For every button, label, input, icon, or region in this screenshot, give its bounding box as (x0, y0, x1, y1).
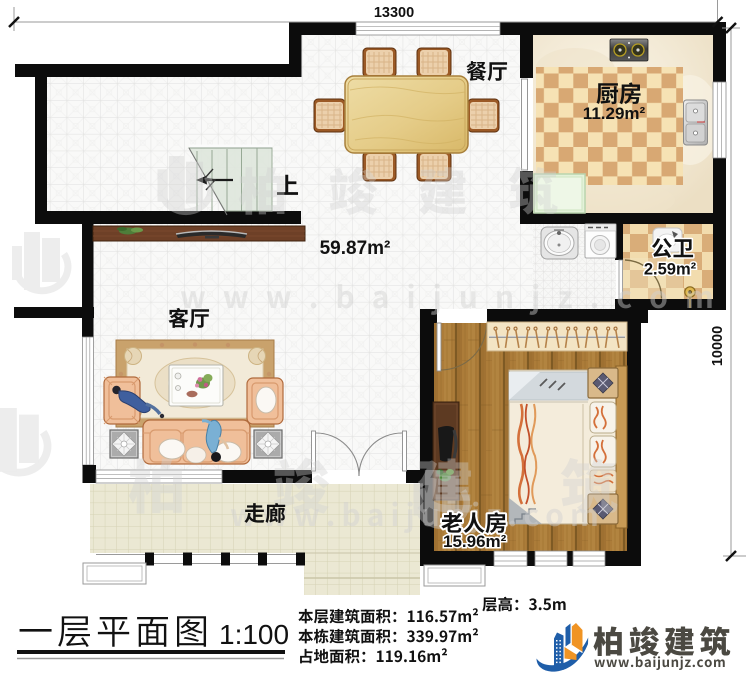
svg-text:11.29m²: 11.29m² (583, 104, 646, 123)
svg-text:15.96m²: 15.96m² (443, 532, 507, 551)
svg-text:10000: 10000 (710, 326, 726, 366)
svg-text:59.87m²: 59.87m² (320, 238, 391, 259)
svg-text:2.59m²: 2.59m² (644, 261, 697, 279)
svg-text:1:100: 1:100 (219, 619, 289, 650)
svg-text:13300: 13300 (374, 5, 414, 21)
